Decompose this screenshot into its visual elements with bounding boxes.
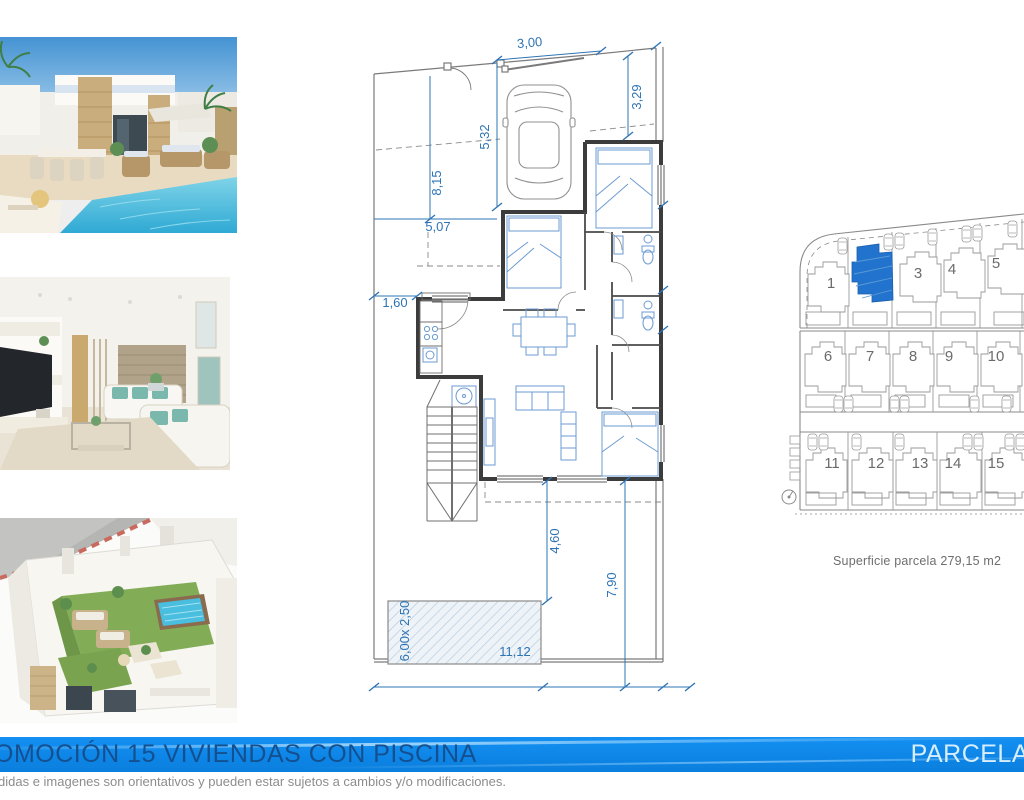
villa-exterior-illustration	[0, 37, 237, 233]
site-plan-drawing: 1 3 4 5 6 7 8 9 10 11 12 13 14 15	[778, 205, 1024, 580]
compass-icon	[782, 490, 796, 504]
edge-details	[790, 436, 800, 480]
kitchen-counter	[420, 293, 470, 373]
dim-right-setback: 3,29	[629, 84, 644, 109]
dim-pool-size: 6,00x 2,50	[397, 601, 412, 662]
plot-number-13: 13	[912, 455, 929, 472]
plot-number-5: 5	[992, 255, 1000, 272]
plot-number-15: 15	[988, 455, 1005, 472]
highlighted-plot	[852, 244, 893, 302]
parcel-label: PARCELA	[911, 740, 1024, 769]
dim-left-setback: 8,15	[429, 170, 444, 195]
plot-number-14: 14	[945, 455, 962, 472]
dim-terrace-depth: 4,60	[547, 528, 562, 553]
plot-number-12: 12	[868, 455, 885, 472]
photo-rooftop-terrace	[0, 518, 237, 723]
disclaimer-text: didas e imagenes son orientativos y pued…	[0, 774, 506, 789]
parcel-surface-caption: Superficie parcela 279,15 m2	[833, 554, 1024, 568]
plot-number-11: 11	[824, 455, 840, 472]
photo-villa-exterior-pool	[0, 37, 237, 233]
interior-walls	[503, 212, 661, 408]
car-icon	[503, 85, 575, 199]
dim-drive-depth: 5,32	[477, 124, 492, 149]
living-room-illustration	[0, 277, 230, 470]
plot-number-8: 8	[909, 348, 917, 365]
footer-banner: OMOCIÓN 15 VIVIENDAS CON PISCINA PARCELA	[0, 737, 1024, 772]
promotion-title: OMOCIÓN 15 VIVIENDAS CON PISCINA	[0, 740, 477, 769]
plot-number-9: 9	[945, 348, 953, 365]
floor-plan-drawing: 3,00 3,29 5,32 8,15 5,07 1,60 4,60 7,90 …	[360, 25, 700, 705]
plot-number-7: 7	[866, 348, 874, 365]
dim-top-width: 3,00	[516, 34, 543, 51]
dim-side-passage: 1,60	[382, 295, 407, 310]
dim-garden-depth: 7,90	[604, 572, 619, 597]
plot-number-3: 3	[914, 265, 922, 282]
plot-number-4: 4	[948, 261, 956, 278]
plot-number-10: 10	[988, 348, 1005, 365]
plot-number-1: 1	[827, 275, 835, 292]
dim-front-width: 5,07	[425, 219, 450, 234]
photo-living-room	[0, 277, 230, 470]
dim-garden-width: 11,12	[499, 644, 531, 659]
door-swings	[438, 232, 632, 428]
rooftop-terrace-illustration	[0, 518, 237, 723]
plot-number-6: 6	[824, 348, 832, 365]
